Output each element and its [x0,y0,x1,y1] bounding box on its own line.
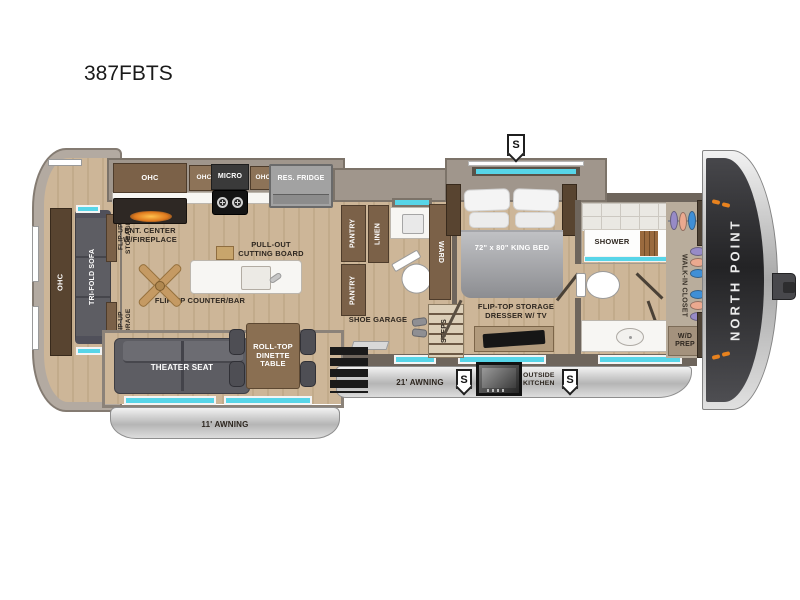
awning-11: 11' AWNING [110,407,340,439]
rear-window-top [48,159,82,166]
sofa-label: TRI-FOLD SOFA [76,218,110,336]
fridge-drawer [273,194,329,204]
kitchen-island [190,260,302,294]
outside-kitchen-unit [476,362,522,396]
ohc-cabinet-1: OHC [113,163,187,193]
micro-label: MICRO [218,173,242,181]
tv-icon [483,330,546,348]
pantry-lower-label: PANTRY [342,265,365,315]
toilet-bowl [586,271,620,299]
rear-slide-window-bottom [76,347,102,355]
bed-pillow [515,212,555,228]
ohc-cabinet-rear: OHC [50,208,72,356]
ent-center-fireplace [113,198,187,224]
burner-icon [232,197,243,208]
hanging-clothes-icon [670,211,678,230]
shoe-garage-label: SHOE GARAGE [348,316,408,325]
rear-window-left-1 [32,226,39,282]
king-bed: 72" x 80" KING BED [461,186,563,298]
res-fridge: RES. FRIDGE [269,164,333,208]
cutting-board-label: PULL-OUT CUTTING BOARD [236,241,306,259]
front-cap-panel: NORTH POINT [706,158,764,402]
dinette-chair [300,329,316,355]
toilet-tank [576,273,586,297]
bed-pillow [513,188,560,212]
awning-11-label: 11' AWNING [111,420,339,429]
dresser-label: FLIP-TOP STORAGE DRESSER W/ TV [468,303,564,321]
page-title: 387FBTS [84,62,173,86]
ohc2-label: OHC [196,174,211,182]
shower: SHOWER [581,202,673,264]
bed-pillow [464,188,511,212]
headboard-window-glass [476,169,576,174]
s-badge-letter: S [458,371,470,390]
ceiling-fan-icon [132,258,188,314]
ent-center-label: ENT. CENTER W/FIREPLACE [108,227,192,245]
dinette-chair [229,361,245,387]
outside-kitchen-knobs [487,389,507,392]
midbath-window-glass [395,200,429,205]
outside-kitchen-label: OUTSIDE KITCHEN [523,372,563,388]
s-badge: S [456,369,472,389]
cooktop [212,190,248,215]
fireplace-glow [130,211,172,222]
brand-label: NORTH POINT [706,158,764,402]
island-sink [241,266,271,290]
bed-blanket [461,230,563,298]
microwave: MICRO [211,164,249,190]
living-slide-window-1 [124,396,216,405]
shoe-icon [412,328,428,338]
cutting-board [216,246,234,260]
rear-slide-window-top [76,205,100,213]
midbath-window [392,198,432,207]
headboard-trim [468,161,584,166]
headboard-window-frame [472,167,580,176]
mid-top-wall [333,168,455,202]
dinette-chair [300,361,316,387]
vanity-drain [629,336,632,339]
pantry-lower: PANTRY [341,264,366,316]
hanging-clothes-icon [679,212,687,231]
awning-21-label: 21' AWNING [385,378,455,387]
linen-closet: LINEN [368,205,389,263]
s-badge: S [507,134,525,156]
s-badge: S [562,369,578,389]
shower-glass [584,256,670,262]
ohc-rear-label: OHC [51,209,71,355]
fan-hub [155,281,165,291]
hanging-clothes-icon [688,211,696,230]
living-slide-window-2 [224,396,312,405]
floorplan: 387FBTS OHC TRI-FOLD SOFA FLIP-UP STORAG… [0,0,800,600]
shower-label: SHOWER [586,238,638,247]
mainbath-toilet [576,270,624,300]
pantry-upper: PANTRY [341,205,366,262]
wd-prep-label: W/D PREP [672,333,698,350]
midbath-vanity [390,207,434,239]
dinette-label: ROLL-TOP DINETTE TABLE [249,343,297,370]
mainbath-vanity [581,320,675,352]
pantry-upper-label: PANTRY [342,206,365,261]
rear-window-left-2 [32,306,39,350]
dinette-table: ROLL-TOP DINETTE TABLE [246,323,300,389]
burner-icon [217,197,228,208]
fridge-label: RES. FRIDGE [271,175,331,183]
ohc1-label: OHC [141,174,158,183]
dinette-chair [229,329,245,355]
bed-label: 72" x 80" KING BED [471,244,553,253]
walk-in-closet-label: WALK-IN CLOSET [676,244,691,328]
hitch-pin [772,273,796,300]
midbath-sink [402,214,424,234]
hitch-notch [783,282,795,293]
dresser-tv [474,326,554,352]
s-badge-letter: S [509,136,523,155]
shower-teak-seat [640,231,658,256]
linen-label: LINEN [369,206,388,262]
shower-tile [582,203,672,231]
bed-pillow [469,212,509,228]
outside-kitchen-screen [482,368,516,388]
s-badge-letter: S [564,371,576,390]
bedroom-pier-left [446,184,461,236]
entry-steps [330,347,368,393]
